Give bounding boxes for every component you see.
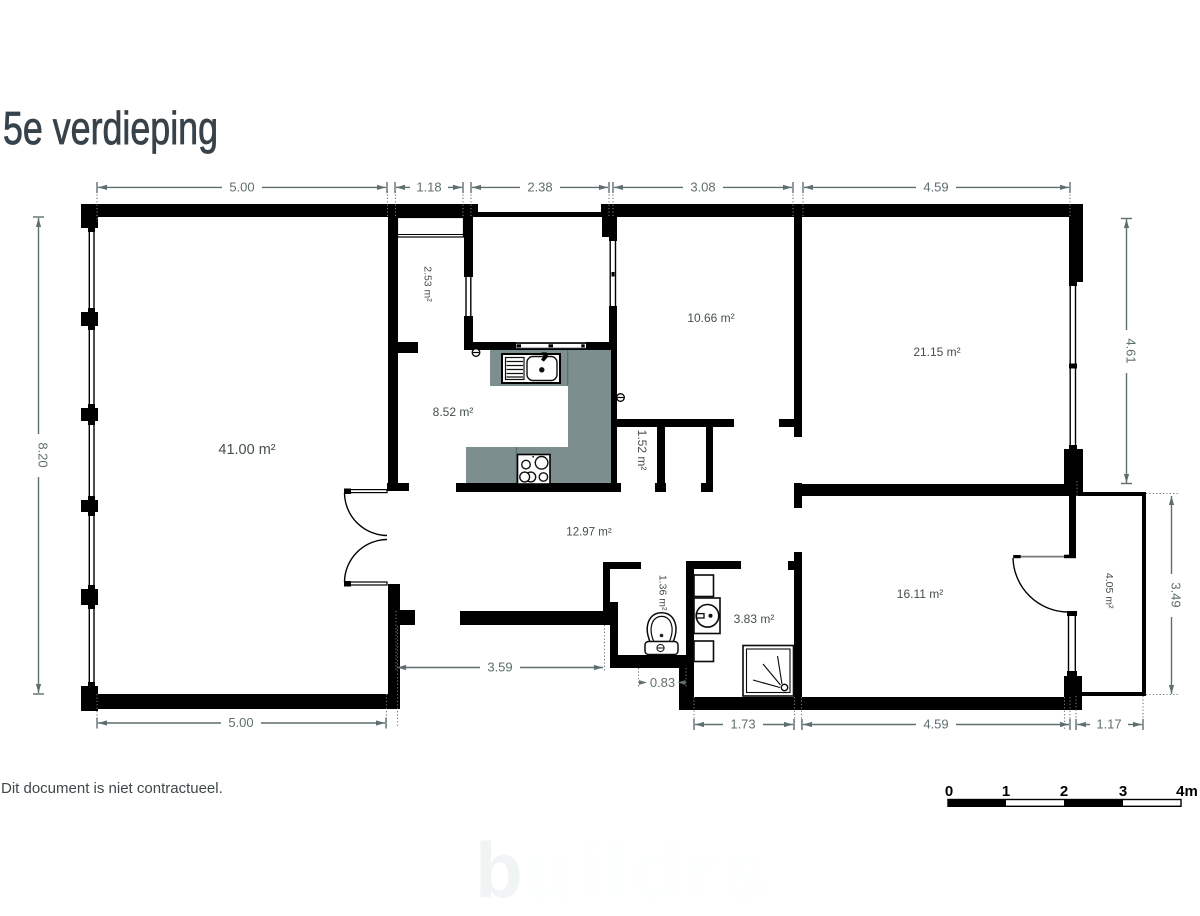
svg-text:3.08: 3.08: [690, 180, 715, 195]
svg-text:8.20: 8.20: [36, 442, 51, 467]
svg-text:1.52 m²: 1.52 m²: [635, 430, 649, 471]
svg-text:1.18: 1.18: [416, 180, 441, 195]
svg-text:3: 3: [1119, 783, 1127, 800]
svg-text:1: 1: [1002, 783, 1010, 800]
svg-text:5e verdieping: 5e verdieping: [3, 102, 218, 154]
svg-text:5.00: 5.00: [229, 180, 254, 195]
svg-text:4m: 4m: [1176, 783, 1198, 800]
svg-text:21.15 m²: 21.15 m²: [913, 345, 960, 359]
svg-text:12.97 m²: 12.97 m²: [566, 527, 612, 539]
svg-text:41.00 m²: 41.00 m²: [218, 442, 275, 458]
svg-text:1.17: 1.17: [1096, 717, 1121, 732]
svg-text:3.59: 3.59: [487, 660, 512, 675]
svg-text:1.73: 1.73: [730, 717, 755, 732]
svg-text:uildrs: uildrs: [524, 826, 772, 914]
svg-text:2.38: 2.38: [527, 180, 552, 195]
svg-text:4.05 m²: 4.05 m²: [1103, 573, 1115, 609]
svg-text:0: 0: [945, 783, 953, 800]
svg-text:4.59: 4.59: [923, 717, 948, 732]
svg-text:3.83 m²: 3.83 m²: [734, 612, 775, 626]
svg-text:2.53 m²: 2.53 m²: [422, 266, 434, 302]
svg-text:4.61: 4.61: [1124, 338, 1139, 363]
svg-text:b: b: [475, 826, 523, 914]
svg-text:Dit document is niet contractu: Dit document is niet contractueel.: [1, 780, 223, 797]
svg-text:4.59: 4.59: [923, 180, 948, 195]
svg-text:10.66 m²: 10.66 m²: [687, 311, 734, 325]
svg-text:2: 2: [1060, 783, 1068, 800]
svg-text:3.49: 3.49: [1169, 582, 1184, 607]
svg-text:1.36 m²: 1.36 m²: [657, 575, 669, 611]
svg-text:16.11 m²: 16.11 m²: [897, 587, 943, 601]
svg-text:5.00: 5.00: [228, 715, 253, 730]
svg-text:8.52 m²: 8.52 m²: [433, 405, 474, 419]
svg-text:0.83: 0.83: [650, 675, 675, 690]
